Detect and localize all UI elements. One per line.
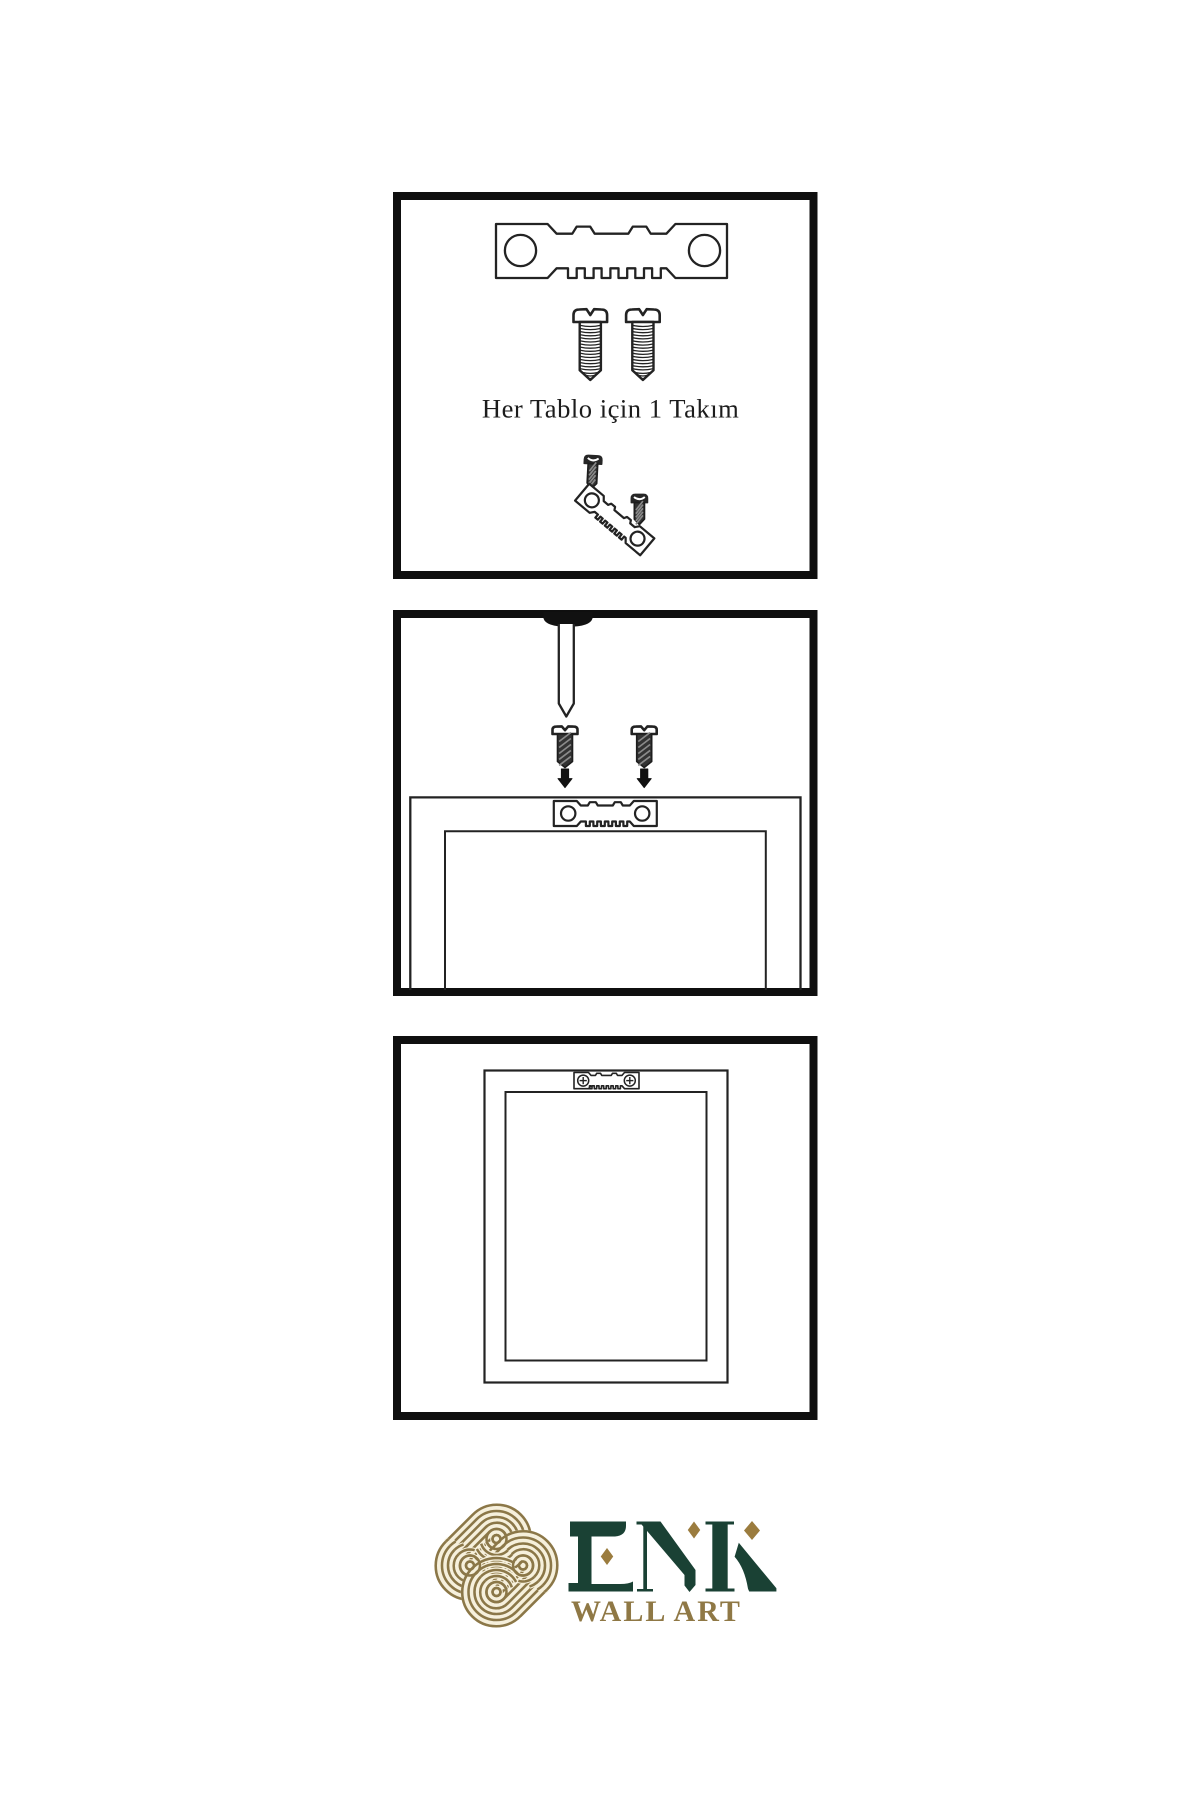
- svg-text:Her Tablo için 1 Takım: Her Tablo için 1 Takım: [482, 394, 739, 424]
- svg-text:WALL ART: WALL ART: [571, 1595, 742, 1628]
